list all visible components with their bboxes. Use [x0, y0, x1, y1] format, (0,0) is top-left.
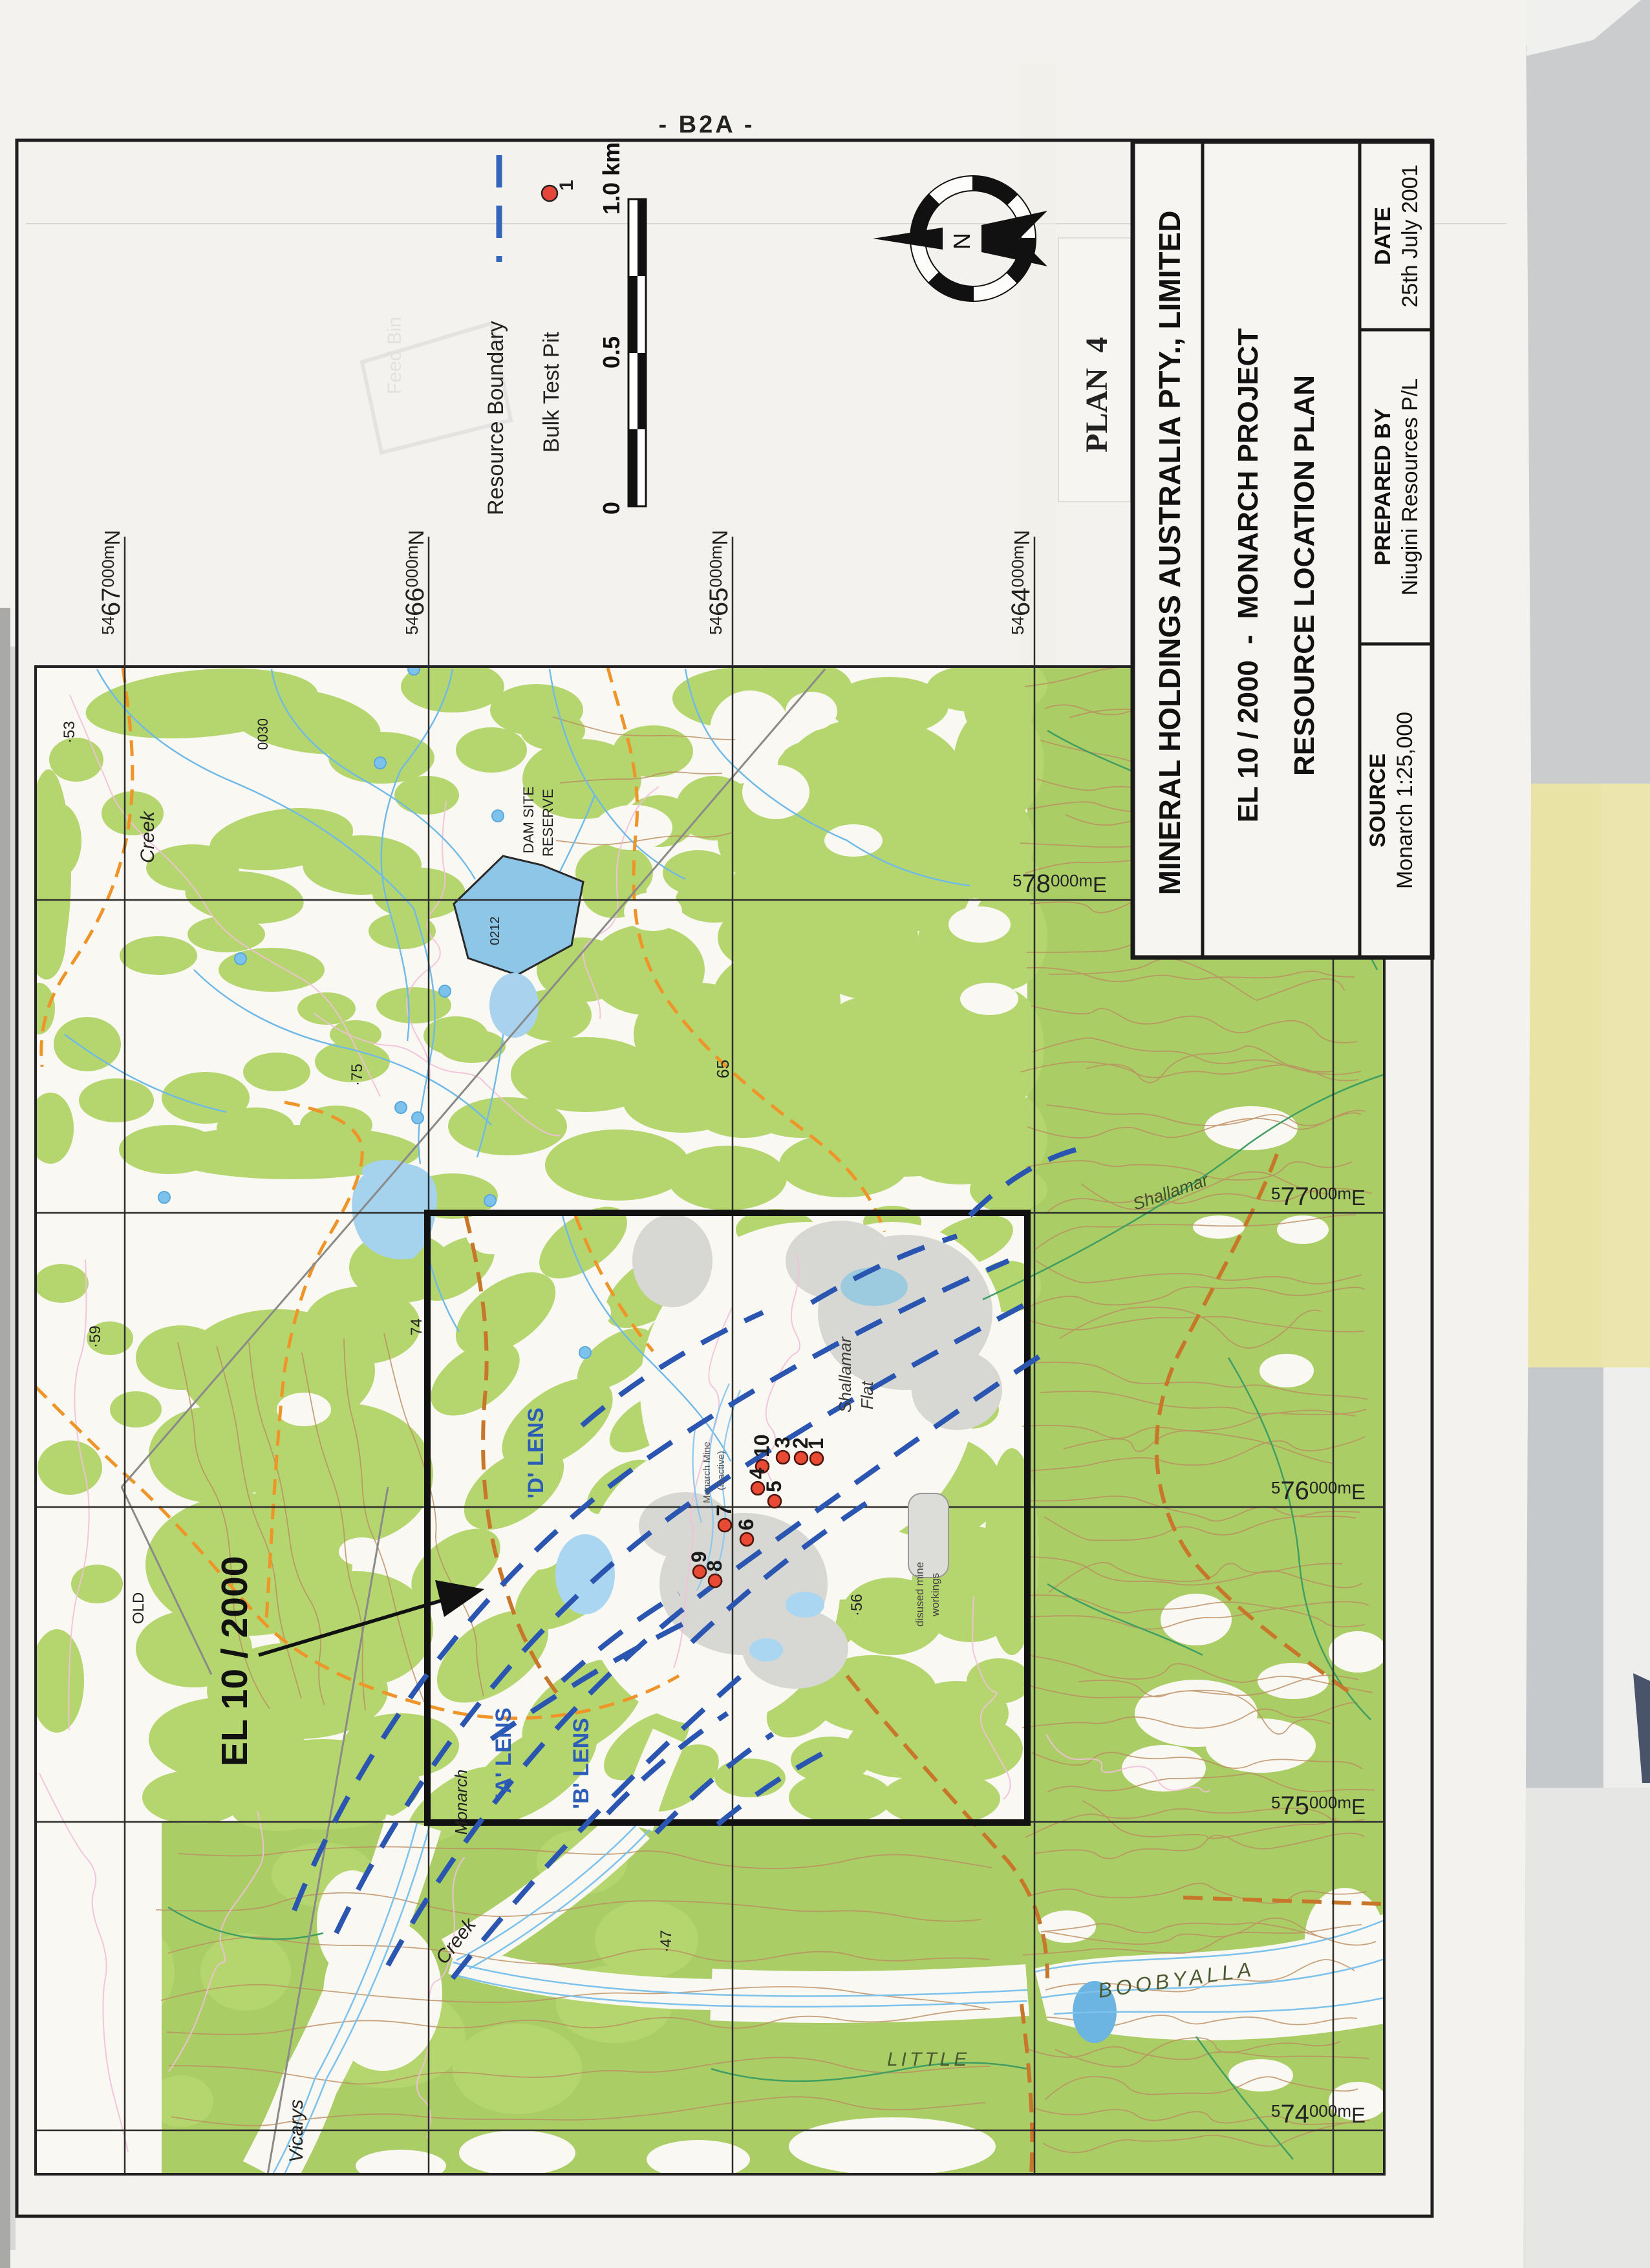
- svg-text:Monarch: Monarch: [451, 1770, 471, 1835]
- svg-text:SOURCE: SOURCE: [1366, 753, 1390, 847]
- svg-text:·47: ·47: [658, 1930, 675, 1952]
- svg-text:EL 10 / 2000 - MONARCH PROJE: EL 10 / 2000 - MONARCH PROJECT: [1232, 328, 1264, 823]
- svg-text:10: 10: [750, 1434, 773, 1457]
- svg-text:disused mine: disused mine: [914, 1562, 926, 1627]
- svg-text:LITTLE: LITTLE: [887, 2049, 970, 2070]
- svg-text:74: 74: [408, 1318, 425, 1336]
- svg-text:Bulk Test Pit: Bulk Test Pit: [539, 332, 564, 453]
- svg-text:·53: ·53: [61, 721, 78, 744]
- svg-text:- B2A -: - B2A -: [658, 111, 755, 138]
- svg-text:N: N: [948, 233, 975, 250]
- svg-text:Vicarys: Vicarys: [286, 2099, 307, 2163]
- svg-text:1.0 km: 1.0 km: [598, 142, 625, 215]
- svg-text:7: 7: [712, 1504, 736, 1516]
- svg-text:DATE: DATE: [1371, 207, 1395, 265]
- svg-text:Monarch 1:25,000: Monarch 1:25,000: [1393, 712, 1417, 889]
- svg-text:PLAN 4: PLAN 4: [1080, 337, 1114, 453]
- svg-text:4: 4: [745, 1468, 769, 1479]
- svg-text:6: 6: [734, 1519, 758, 1530]
- svg-text:'B' LENS: 'B' LENS: [569, 1718, 594, 1809]
- svg-text:(inactive): (inactive): [716, 1451, 727, 1490]
- svg-text:Monarch Mine: Monarch Mine: [702, 1442, 712, 1503]
- svg-text:'A' LENS: 'A' LENS: [491, 1707, 516, 1799]
- svg-text:PREPARED BY: PREPARED BY: [1371, 408, 1395, 565]
- svg-text:Shallamar: Shallamar: [835, 1336, 855, 1413]
- svg-text:Niugini Resources P/L: Niugini Resources P/L: [1398, 378, 1422, 595]
- svg-text:Feed Bin: Feed Bin: [384, 317, 405, 394]
- svg-text:25th July 2001: 25th July 2001: [1398, 164, 1422, 307]
- svg-text:65: 65: [713, 1060, 733, 1078]
- svg-text:0030: 0030: [255, 718, 271, 750]
- svg-text:1: 1: [556, 180, 577, 191]
- svg-text:MINERAL HOLDINGS AUSTRALIA PTY: MINERAL HOLDINGS AUSTRALIA PTY., LIMITED: [1153, 211, 1186, 895]
- svg-text:RESOURCE LOCATION PLAN: RESOURCE LOCATION PLAN: [1289, 375, 1320, 776]
- svg-text:·56: ·56: [848, 1594, 866, 1616]
- svg-text:'D' LENS: 'D' LENS: [524, 1407, 548, 1499]
- svg-text:workings: workings: [929, 1573, 941, 1617]
- svg-text:8: 8: [703, 1560, 726, 1572]
- svg-text:0212: 0212: [488, 917, 502, 946]
- svg-text:0: 0: [598, 502, 625, 515]
- svg-text:·75: ·75: [348, 1064, 366, 1086]
- svg-text:Resource Boundary: Resource Boundary: [484, 321, 508, 515]
- svg-text:Flat: Flat: [857, 1380, 877, 1409]
- svg-text:RESERVE: RESERVE: [540, 789, 556, 857]
- svg-text:OLD: OLD: [130, 1592, 147, 1624]
- svg-text:EL 10 / 2000: EL 10 / 2000: [214, 1556, 255, 1766]
- svg-text:DAM SITE: DAM SITE: [520, 786, 537, 853]
- svg-text:Creek: Creek: [137, 810, 158, 863]
- svg-text:·59: ·59: [87, 1325, 104, 1348]
- svg-text:1: 1: [804, 1438, 828, 1450]
- svg-text:0.5: 0.5: [598, 336, 625, 369]
- svg-text:5: 5: [762, 1481, 786, 1492]
